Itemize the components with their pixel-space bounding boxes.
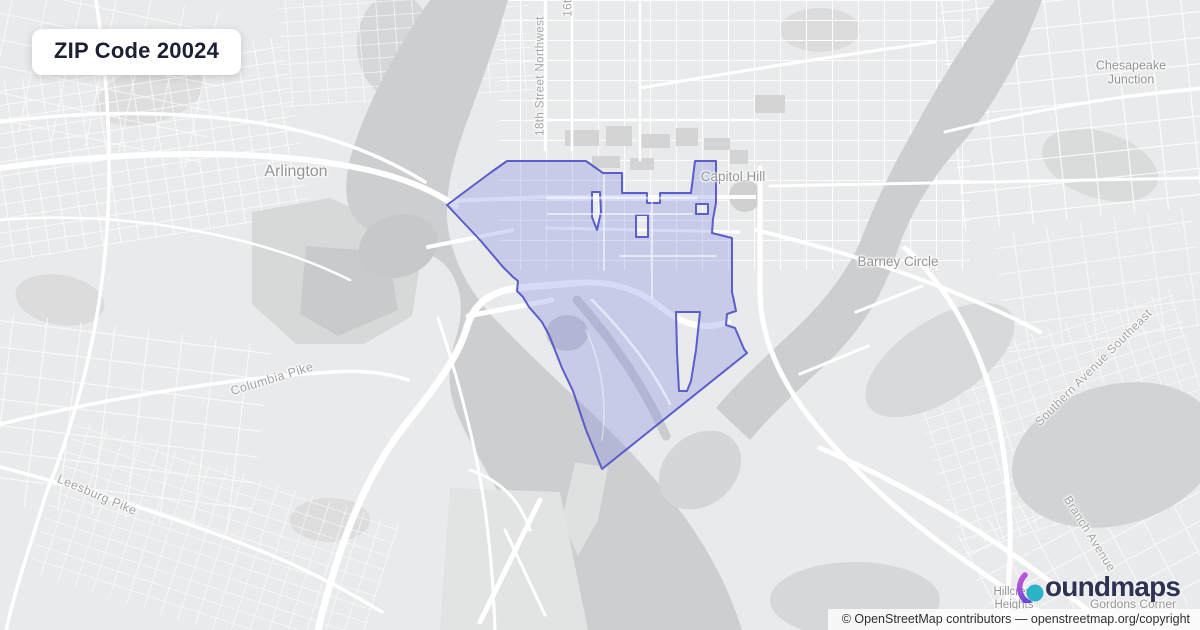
map-label-capitol-hill: Capitol Hill <box>701 169 766 185</box>
logo-wordmark: oundmaps <box>1045 572 1180 602</box>
attribution-bar: © OpenStreetMap contributors — openstree… <box>828 609 1200 630</box>
map-label-barney-circle: Barney Circle <box>857 254 938 270</box>
boundmaps-logo: oundmaps <box>1016 572 1180 603</box>
map-label-18th-street-northwest: 18th Street Northwest <box>534 16 547 136</box>
map-label-arlington: Arlington <box>264 163 327 181</box>
boundmaps-b-pin-icon <box>1016 572 1045 603</box>
attribution-text[interactable]: © OpenStreetMap contributors — openstree… <box>842 612 1190 626</box>
zip-code-title: ZIP Code 20024 <box>54 38 219 63</box>
map-stage: Arlington Capitol Hill Barney Circle Che… <box>0 0 1200 630</box>
map-label-chesapeake-junction: Chesapeake Junction <box>1096 59 1166 88</box>
map-label-16th-street-partial: 16t <box>562 0 575 17</box>
title-badge: ZIP Code 20024 <box>32 29 241 75</box>
map-canvas[interactable] <box>0 0 1200 630</box>
